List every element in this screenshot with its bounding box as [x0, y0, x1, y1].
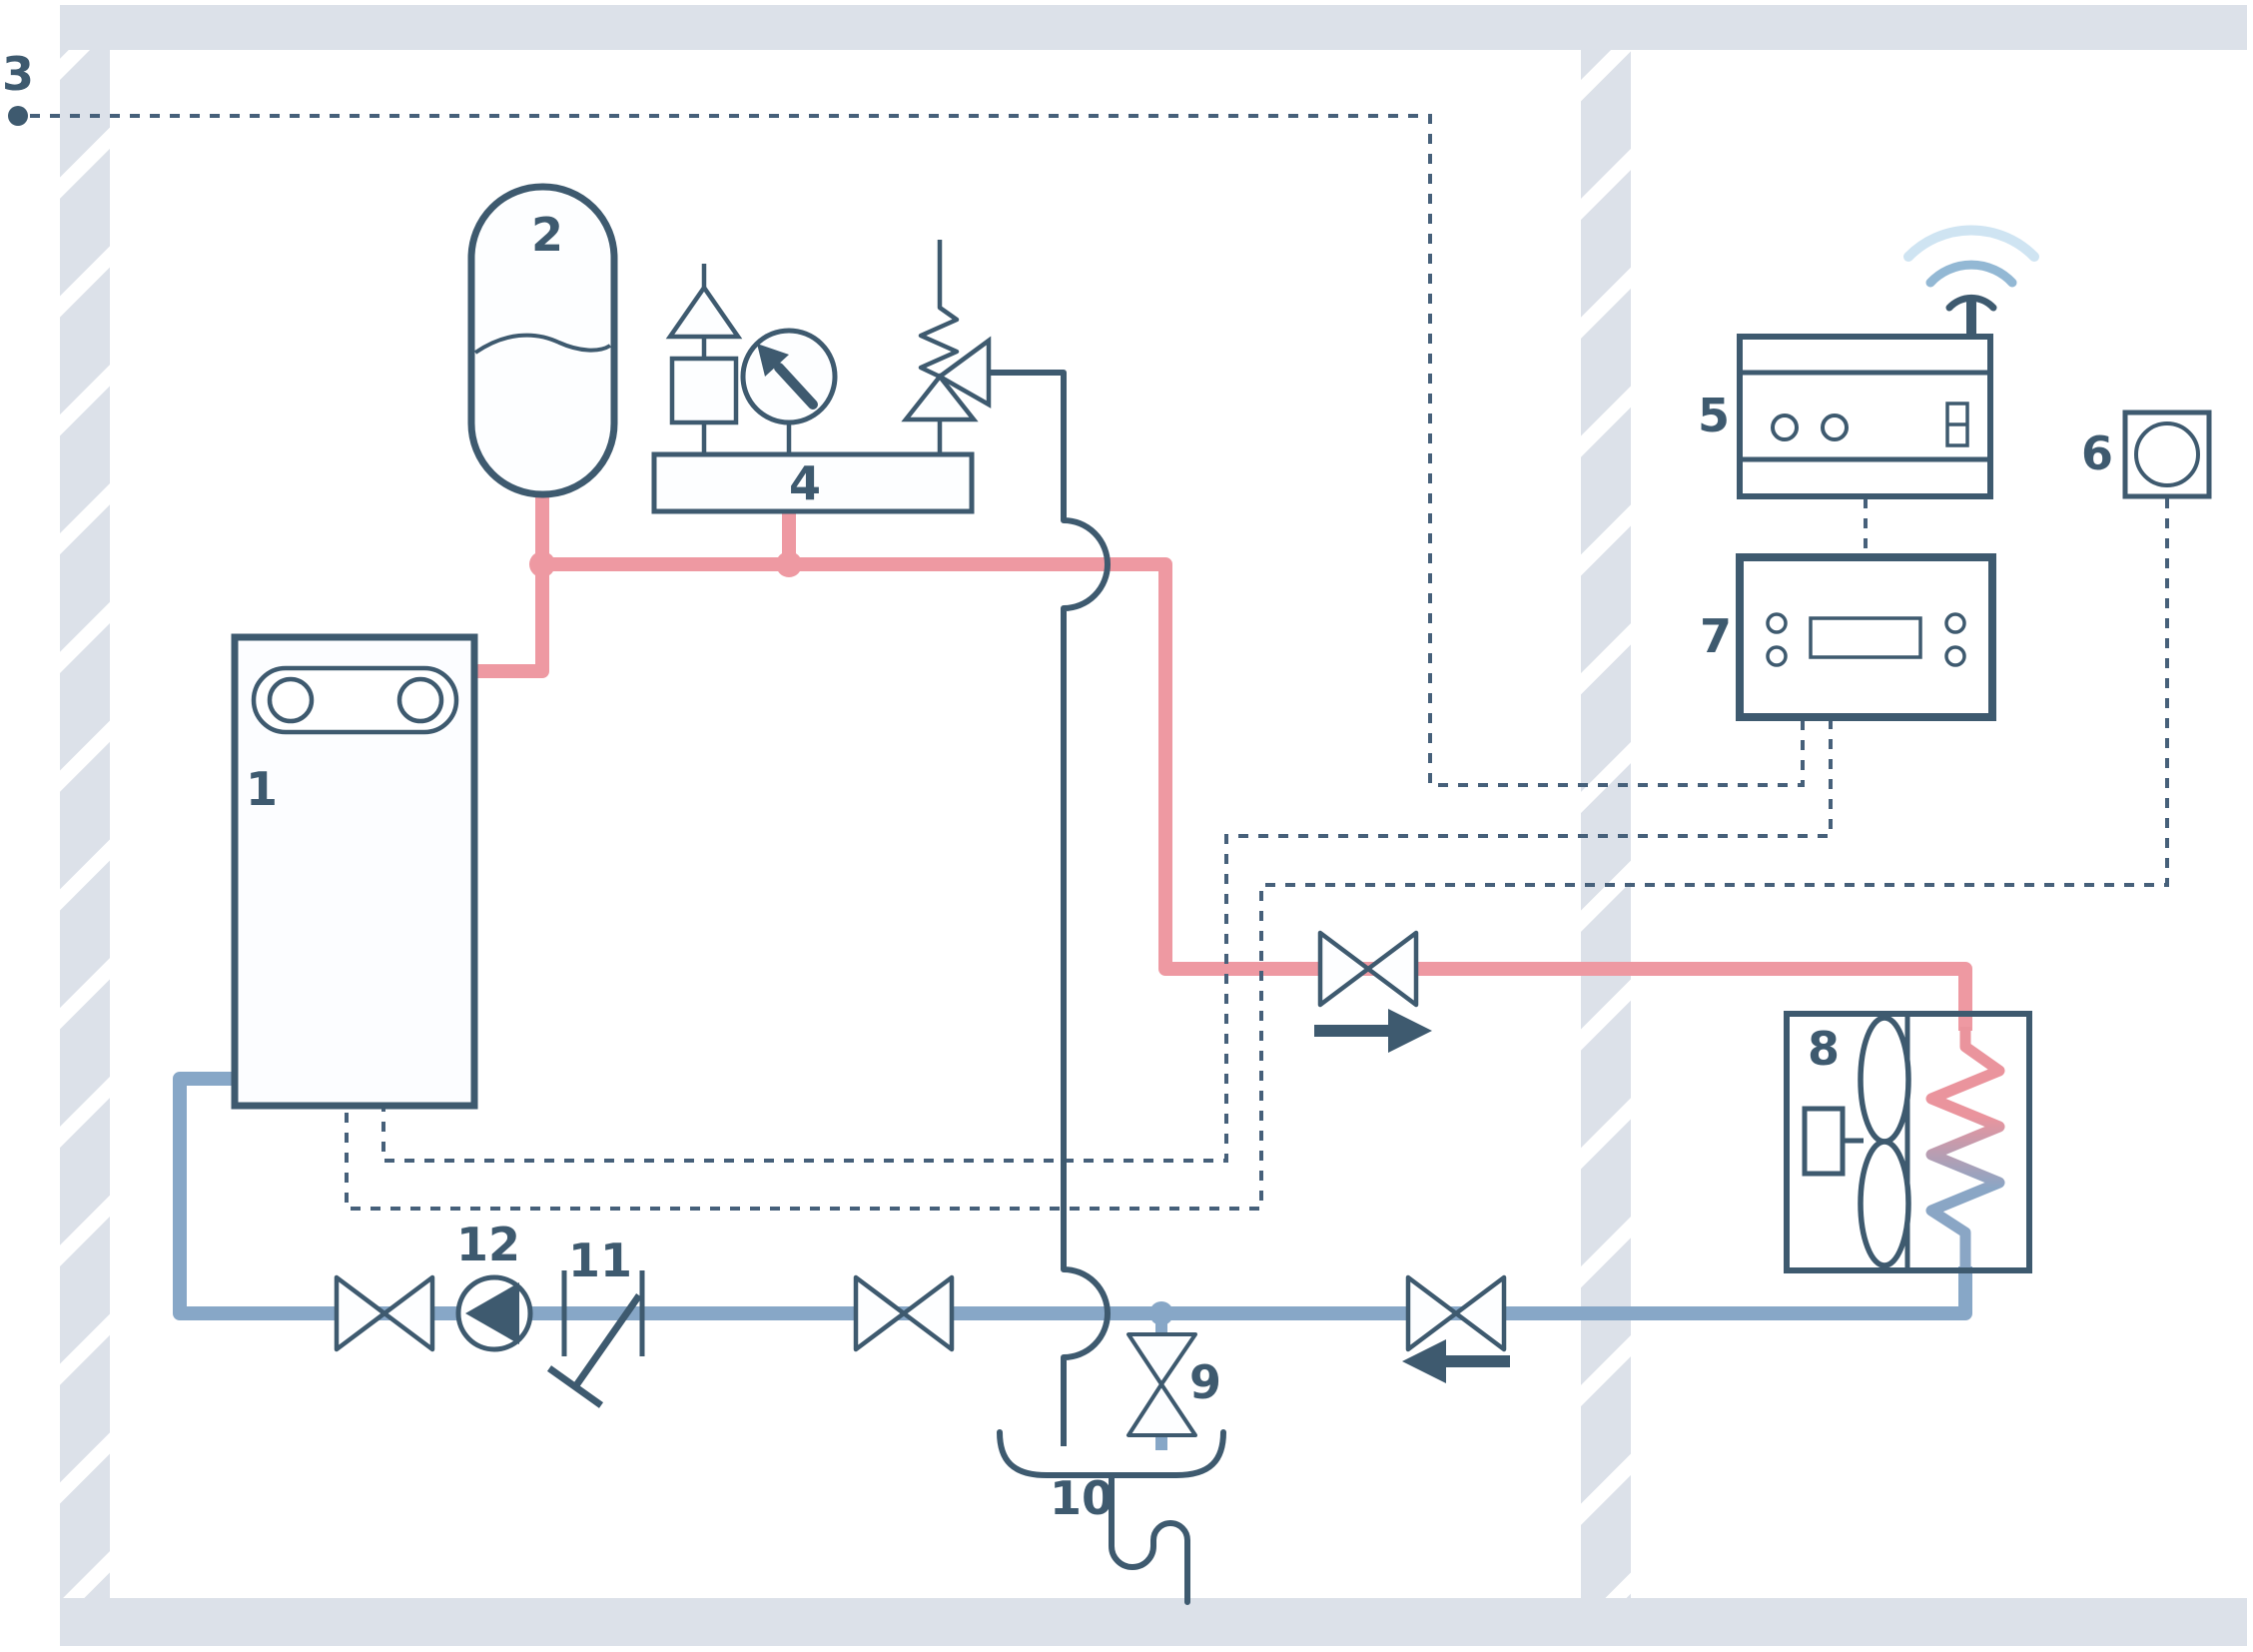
controller-button	[1768, 614, 1786, 632]
shutoff-valve-supply	[1314, 933, 1432, 1053]
label-2: 2	[531, 208, 563, 262]
circulation-pump	[458, 1277, 530, 1349]
controller-button	[1946, 647, 1964, 665]
label-4: 4	[789, 456, 821, 510]
antenna-icon	[1966, 299, 1976, 339]
return-pipe-blue	[180, 1079, 1965, 1450]
label-11: 11	[568, 1234, 632, 1287]
funnel-bowl	[1000, 1432, 1223, 1475]
pipe-junction-dot	[776, 551, 802, 577]
safety-valve-icon	[906, 240, 989, 454]
sensor-3-dot	[8, 106, 28, 126]
flow-arrow-left-icon	[1402, 1339, 1510, 1383]
room-controller	[1740, 557, 1992, 717]
controller-display	[1811, 618, 1920, 657]
fan-blade-icon	[1861, 1142, 1908, 1265]
filter-strainer	[549, 1270, 642, 1405]
wall-bottom-band	[60, 1598, 2247, 1646]
shutoff-valve-return-right	[1402, 1277, 1510, 1383]
sensor-dial	[2136, 423, 2198, 485]
wall-left-hatched	[60, 50, 110, 1598]
siphon-trap	[1112, 1475, 1187, 1602]
fan-blade-icon	[1861, 1018, 1908, 1142]
outdoor-sensor	[2125, 413, 2209, 496]
safety-group	[654, 240, 989, 511]
supply-pipe-boiler-riser	[469, 564, 542, 671]
label-10: 10	[1050, 1471, 1114, 1525]
discharge-line	[987, 373, 1108, 1446]
label-9: 9	[1189, 1355, 1221, 1409]
heat-exchanger-coil	[1931, 1027, 1999, 1268]
label-7: 7	[1700, 609, 1732, 663]
fan-motor	[1805, 1109, 1843, 1174]
gateway-led-right	[1823, 415, 1847, 439]
wireless-gateway	[1740, 230, 2034, 496]
label-5: 5	[1698, 389, 1730, 442]
controller-button	[1768, 647, 1786, 665]
shutoff-valve-return-mid	[856, 1277, 952, 1349]
schematic-canvas: 1 2 3 4 5 6 7 8 9 10 11 12	[0, 0, 2253, 1652]
label-6: 6	[2081, 426, 2113, 480]
boiler-connection-left	[270, 679, 312, 721]
wifi-icon	[1908, 230, 2034, 308]
boiler-connection-right	[399, 679, 441, 721]
pipe-junction-dot	[529, 551, 555, 577]
wall-interior-hatched	[1581, 50, 1631, 1598]
label-12: 12	[456, 1218, 520, 1271]
label-3: 3	[2, 47, 34, 101]
label-1: 1	[246, 762, 278, 816]
pressure-gauge-icon	[743, 331, 835, 454]
indoor-unit-boiler	[235, 637, 474, 1106]
air-vent-icon	[670, 264, 738, 454]
return-pipe-main	[180, 1079, 1965, 1313]
gateway-led-left	[1773, 415, 1797, 439]
shutoff-valve-return-left	[337, 1277, 432, 1349]
drain-valve	[1128, 1334, 1195, 1435]
flow-arrow-right-icon	[1314, 1009, 1432, 1053]
controller-button	[1946, 614, 1964, 632]
pipe-junction-dot	[1149, 1301, 1173, 1325]
wall-top-band	[60, 5, 2247, 50]
label-8: 8	[1808, 1022, 1840, 1076]
